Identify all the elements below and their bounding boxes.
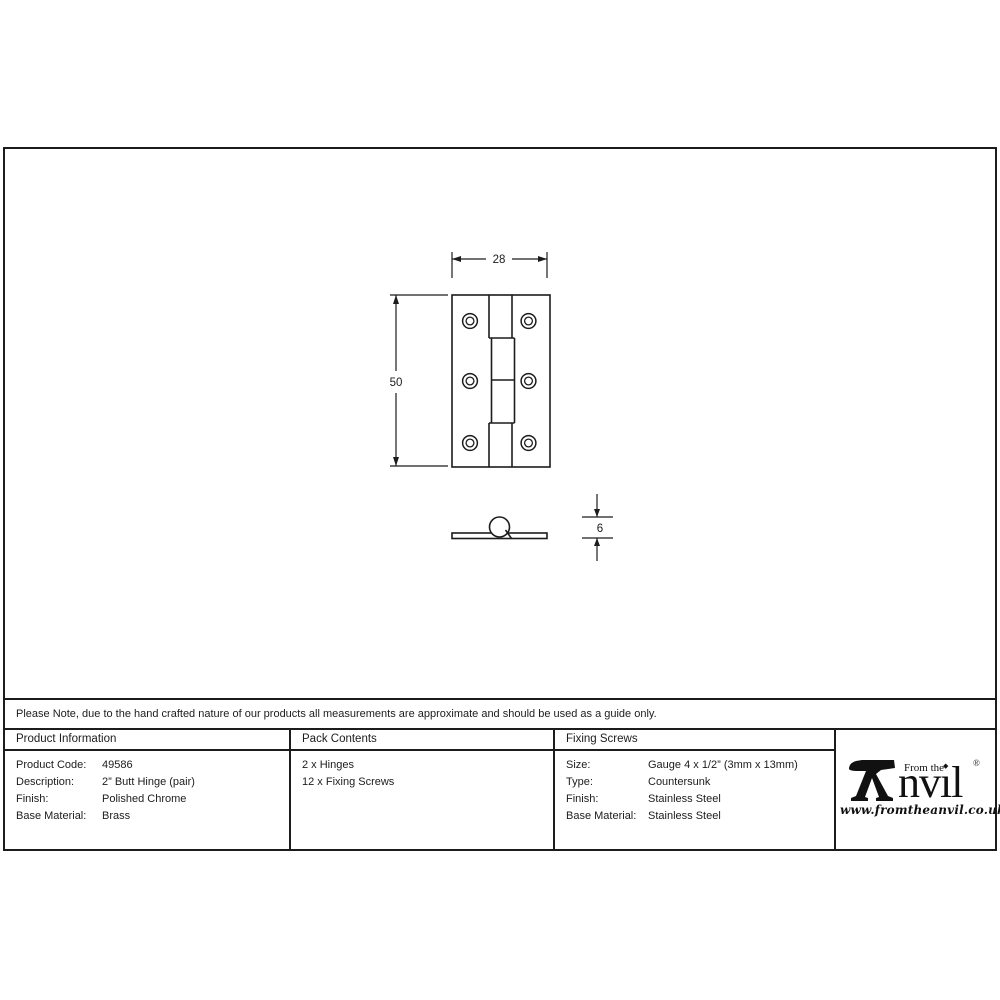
row-label: Finish: bbox=[16, 791, 102, 808]
fixing-screws-header: Fixing Screws bbox=[555, 730, 834, 751]
table-row: Size: Gauge 4 x 1/2” (3mm x 13mm) bbox=[566, 757, 830, 774]
table-row: Type: Countersunk bbox=[566, 774, 830, 791]
pack-contents-header: Pack Contents bbox=[291, 730, 553, 751]
table-row: Description: 2” Butt Hinge (pair) bbox=[16, 774, 285, 791]
row-value: 49586 bbox=[102, 757, 133, 774]
dim-height-label: 50 bbox=[390, 377, 403, 389]
row-label: Finish: bbox=[566, 791, 648, 808]
row-value: Polished Chrome bbox=[102, 791, 186, 808]
product-information-header: Product Information bbox=[5, 730, 289, 751]
table-row: Finish: Polished Chrome bbox=[16, 791, 285, 808]
spec-table: Product Information Product Code: 49586 … bbox=[5, 730, 995, 849]
row-label: Description: bbox=[16, 774, 102, 791]
row-value: Stainless Steel bbox=[648, 791, 721, 808]
row-value: 2” Butt Hinge (pair) bbox=[102, 774, 195, 791]
brand-wordmark: nvıl◆ bbox=[898, 761, 962, 805]
list-item: 12 x Fixing Screws bbox=[302, 774, 549, 791]
list-item: 2 x Hinges bbox=[302, 757, 549, 774]
row-value: Stainless Steel bbox=[648, 808, 721, 825]
table-row: Base Material: Stainless Steel bbox=[566, 808, 830, 825]
registered-mark: ® bbox=[973, 758, 980, 768]
dim-width-label: 28 bbox=[493, 254, 506, 266]
row-label: Base Material: bbox=[566, 808, 648, 825]
row-label: Base Material: bbox=[16, 808, 102, 825]
datasheet-page: 28 50 bbox=[0, 0, 1000, 1000]
product-information-column: Product Information Product Code: 49586 … bbox=[5, 730, 291, 849]
hinge-technical-drawing: 28 50 bbox=[370, 240, 620, 570]
note-row: Please Note, due to the hand crafted nat… bbox=[5, 698, 995, 730]
note-text: Please Note, due to the hand crafted nat… bbox=[5, 708, 657, 720]
row-label: Size: bbox=[566, 757, 648, 774]
table-row: Base Material: Brass bbox=[16, 808, 285, 825]
fixing-screws-column: Fixing Screws Size: Gauge 4 x 1/2” (3mm … bbox=[555, 730, 836, 849]
table-row: Finish: Stainless Steel bbox=[566, 791, 830, 808]
from-the-anvil-logo: From the nvıl◆ ® www.fromtheanvil.co.uk bbox=[846, 753, 994, 821]
anvil-icon bbox=[848, 759, 898, 802]
sheet-border: 28 50 bbox=[3, 147, 997, 851]
brand-text: nvıl bbox=[898, 758, 962, 807]
pack-contents-column: Pack Contents 2 x Hinges 12 x Fixing Scr… bbox=[291, 730, 555, 849]
row-value: Gauge 4 x 1/2” (3mm x 13mm) bbox=[648, 757, 798, 774]
brand-column: From the nvıl◆ ® www.fromtheanvil.co.uk bbox=[836, 730, 995, 849]
logo-url-text: www.fromtheanvil.co.uk bbox=[840, 803, 1000, 817]
hinge-side-view bbox=[452, 517, 547, 539]
dim-thickness-label: 6 bbox=[597, 523, 603, 535]
row-value: Brass bbox=[102, 808, 130, 825]
diamond-i-dot: ◆ bbox=[943, 763, 948, 770]
row-label: Type: bbox=[566, 774, 648, 791]
row-value: Countersunk bbox=[648, 774, 710, 791]
screw-holes bbox=[463, 314, 536, 451]
row-label: Product Code: bbox=[16, 757, 102, 774]
table-row: Product Code: 49586 bbox=[16, 757, 285, 774]
